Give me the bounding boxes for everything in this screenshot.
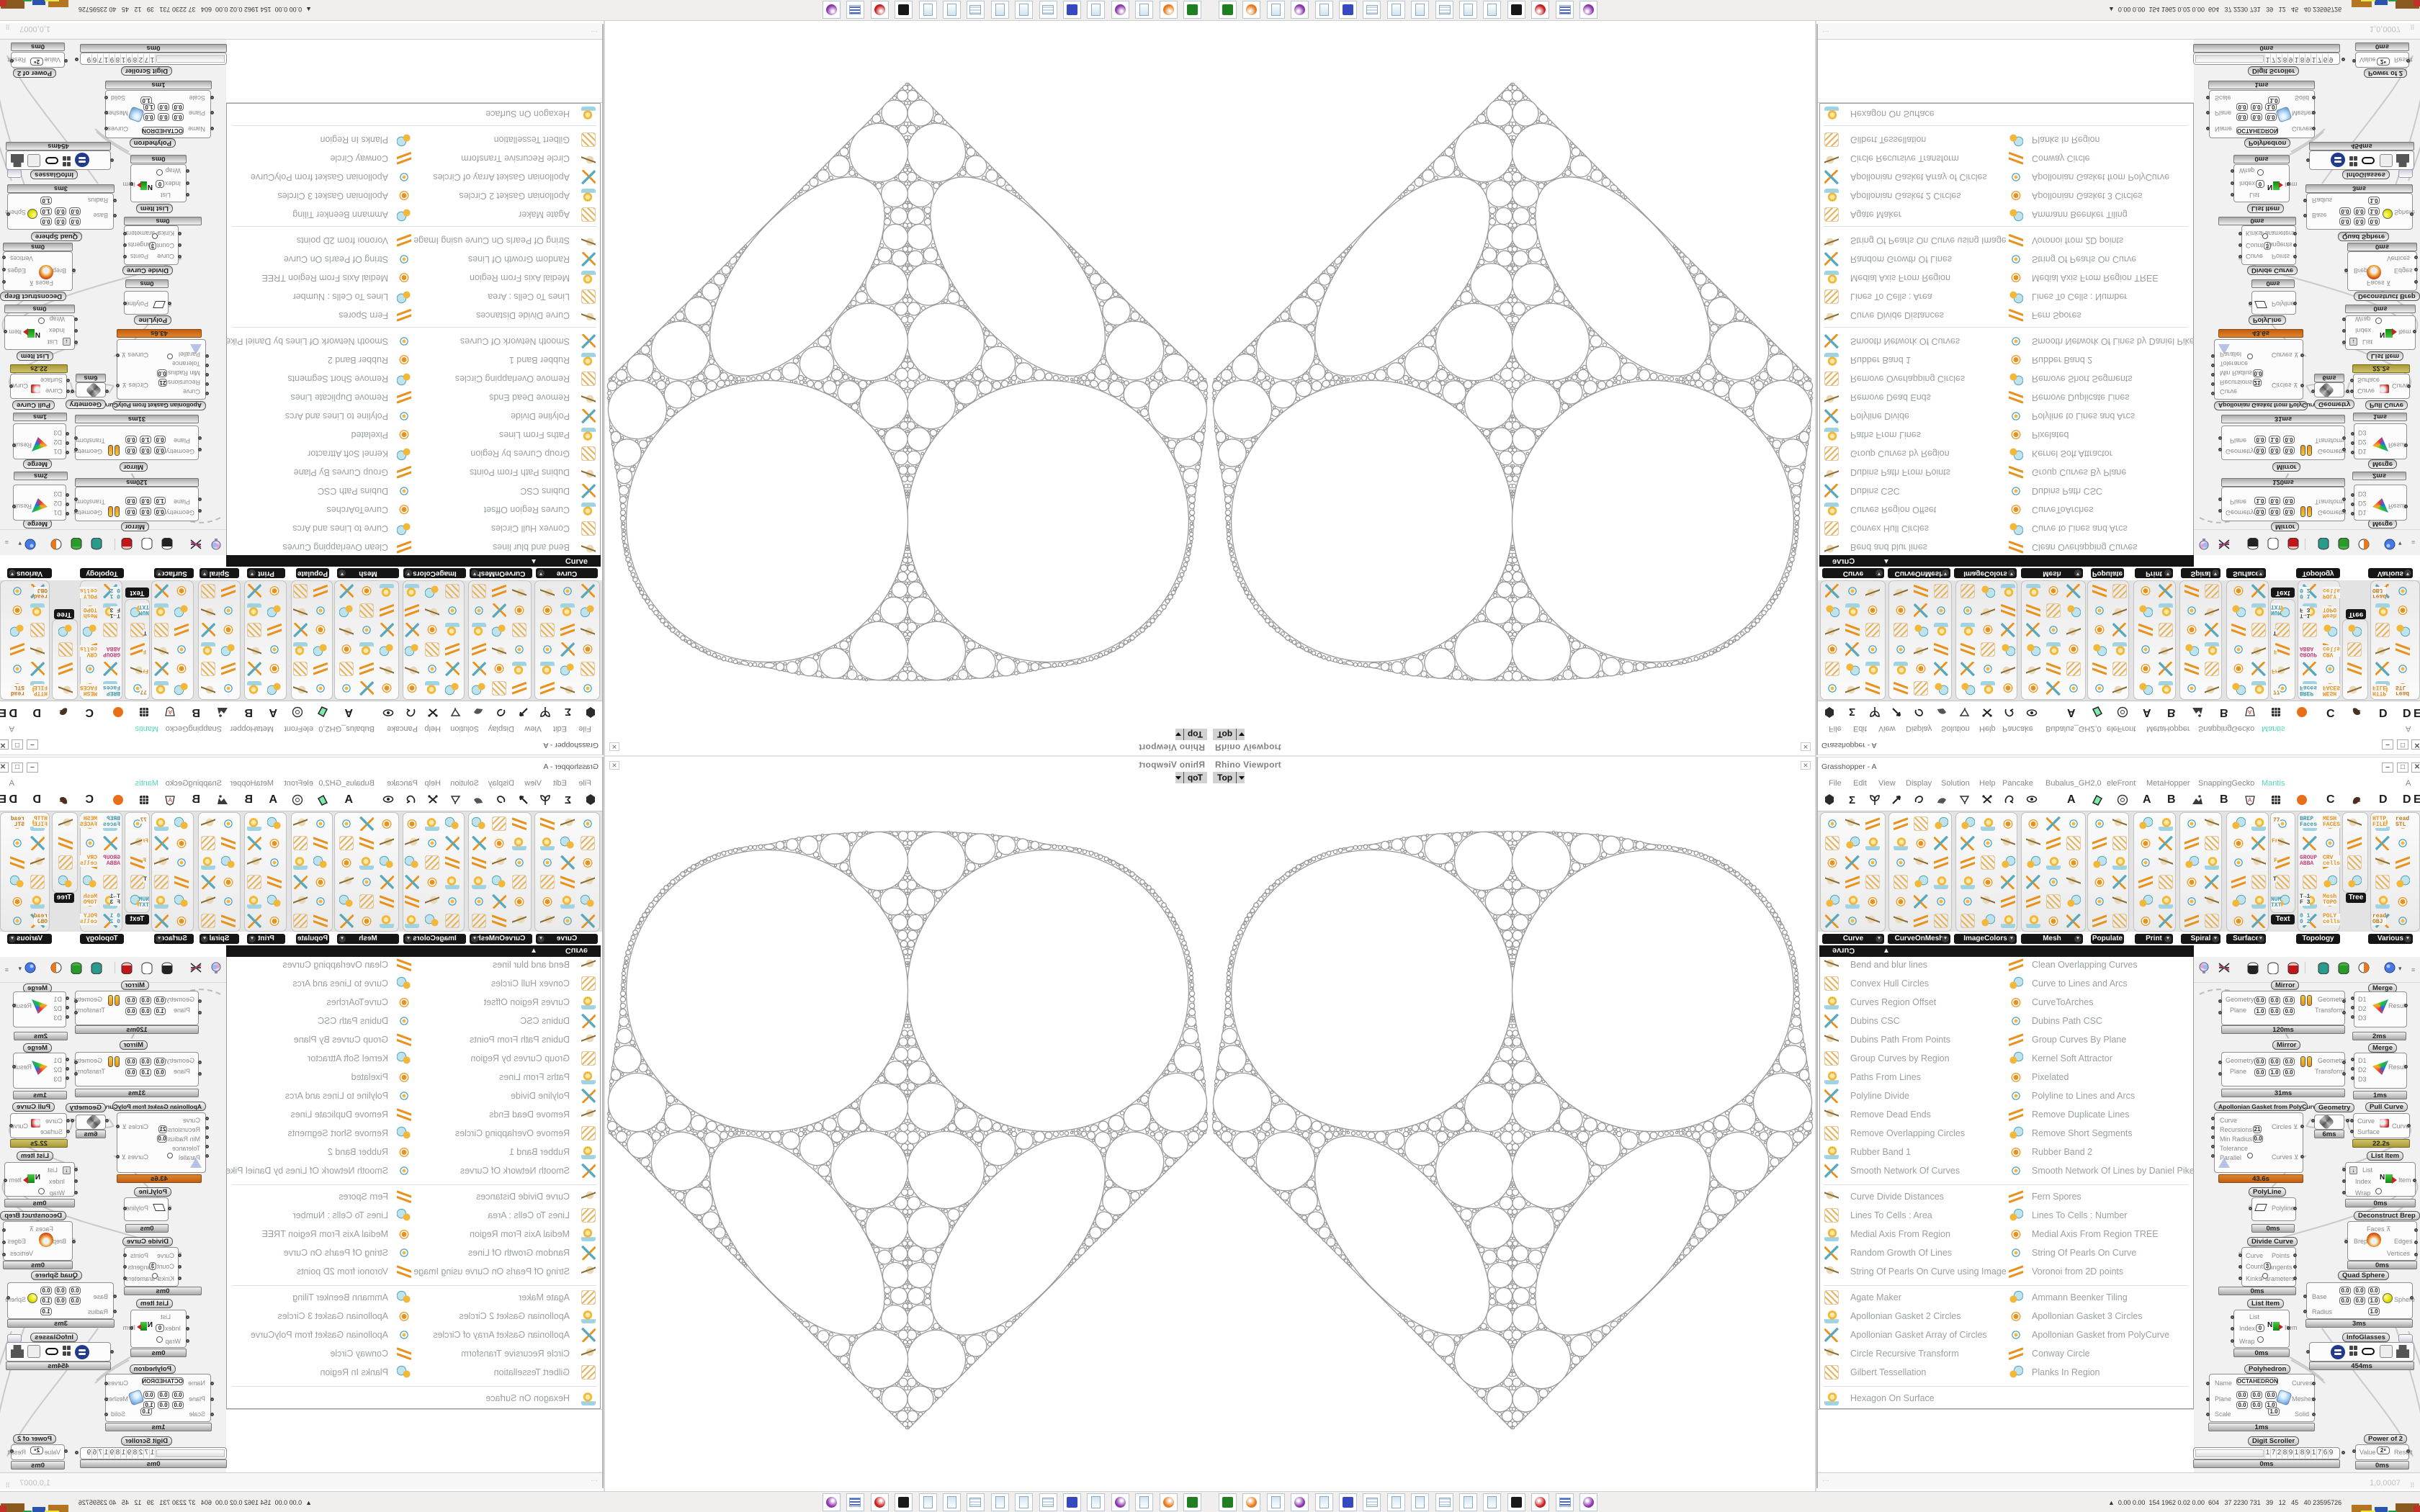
svg-text:A: A bbox=[2248, 797, 2252, 804]
svg-text:A: A bbox=[2248, 708, 2252, 715]
svg-text:A: A bbox=[168, 797, 172, 804]
svg-text:A: A bbox=[168, 708, 172, 715]
svg-text:Σ: Σ bbox=[565, 706, 571, 718]
svg-text:Σ: Σ bbox=[1849, 706, 1855, 718]
svg-text:Σ: Σ bbox=[1849, 794, 1855, 806]
svg-text:Σ: Σ bbox=[565, 794, 571, 806]
